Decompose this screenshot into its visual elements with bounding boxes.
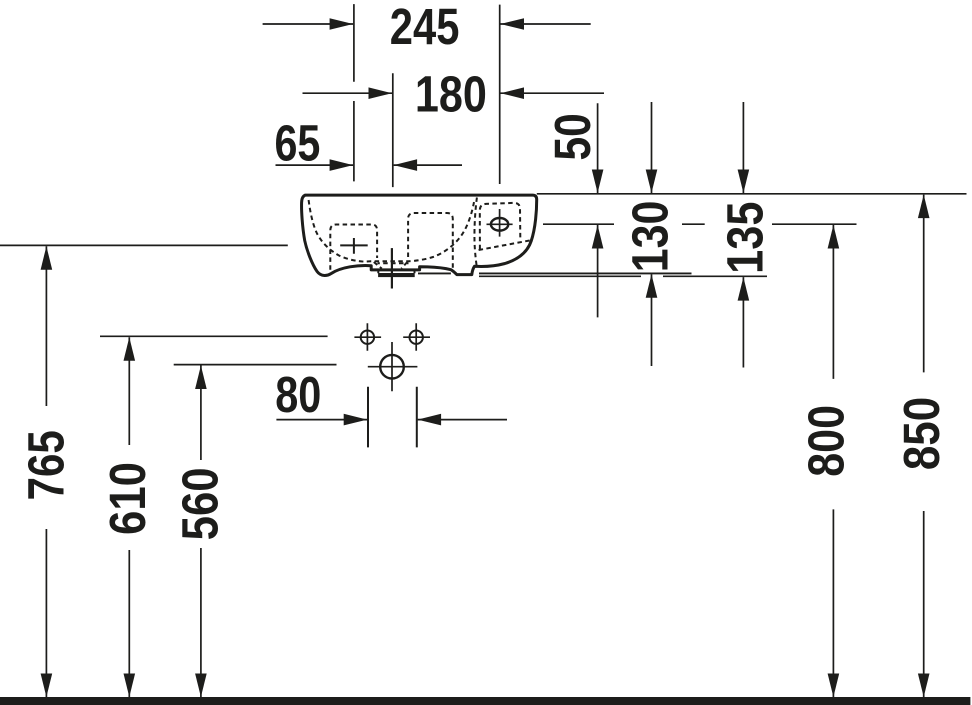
- svg-text:65: 65: [274, 114, 320, 171]
- svg-text:800: 800: [798, 405, 855, 477]
- svg-text:80: 80: [275, 366, 321, 423]
- svg-text:610: 610: [99, 462, 156, 535]
- svg-text:245: 245: [390, 0, 460, 55]
- svg-text:135: 135: [717, 201, 774, 273]
- svg-text:180: 180: [415, 65, 487, 122]
- svg-text:560: 560: [172, 467, 229, 540]
- svg-text:765: 765: [18, 430, 75, 500]
- svg-text:130: 130: [621, 201, 678, 273]
- svg-text:50: 50: [544, 113, 601, 160]
- svg-text:850: 850: [893, 397, 950, 470]
